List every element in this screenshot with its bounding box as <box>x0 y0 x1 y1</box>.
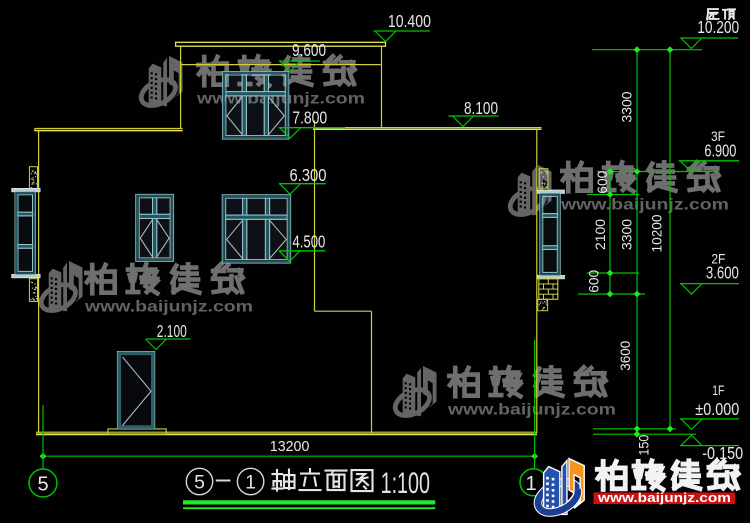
svg-text:5: 5 <box>37 474 48 496</box>
svg-text:1:100: 1:100 <box>381 467 430 500</box>
svg-text:2F: 2F <box>711 251 725 267</box>
svg-text:2100: 2100 <box>593 219 608 250</box>
svg-text:www.baijunjz.com: www.baijunjz.com <box>447 402 616 419</box>
svg-text:3600: 3600 <box>618 341 633 371</box>
svg-text:www.baijunjz.com: www.baijunjz.com <box>560 197 729 214</box>
svg-text:600: 600 <box>587 270 602 293</box>
svg-text:2.100: 2.100 <box>157 321 187 341</box>
svg-text:1: 1 <box>245 472 256 494</box>
svg-text:9.600: 9.600 <box>292 40 326 60</box>
svg-text:150: 150 <box>637 435 652 456</box>
svg-text:±0.000: ±0.000 <box>695 399 739 419</box>
svg-text:6.300: 6.300 <box>290 165 327 185</box>
svg-text:8.100: 8.100 <box>464 98 498 118</box>
svg-text:3F: 3F <box>711 128 725 144</box>
svg-text:1: 1 <box>525 473 536 495</box>
svg-text:www.baijunjz.com: www.baijunjz.com <box>597 491 731 505</box>
svg-text:5: 5 <box>194 472 205 494</box>
svg-text:10.200: 10.200 <box>697 17 739 37</box>
svg-text:13200: 13200 <box>270 438 310 455</box>
svg-text:3300: 3300 <box>620 92 635 123</box>
svg-text:10.400: 10.400 <box>388 11 431 31</box>
svg-text:10200: 10200 <box>650 215 665 253</box>
svg-text:3300: 3300 <box>620 219 635 250</box>
svg-text:600: 600 <box>595 171 610 194</box>
svg-text:1F: 1F <box>712 382 724 398</box>
svg-text:www.baijunjz.com: www.baijunjz.com <box>84 299 253 316</box>
svg-text:7.800: 7.800 <box>292 107 327 127</box>
svg-text:4.500: 4.500 <box>292 232 325 252</box>
